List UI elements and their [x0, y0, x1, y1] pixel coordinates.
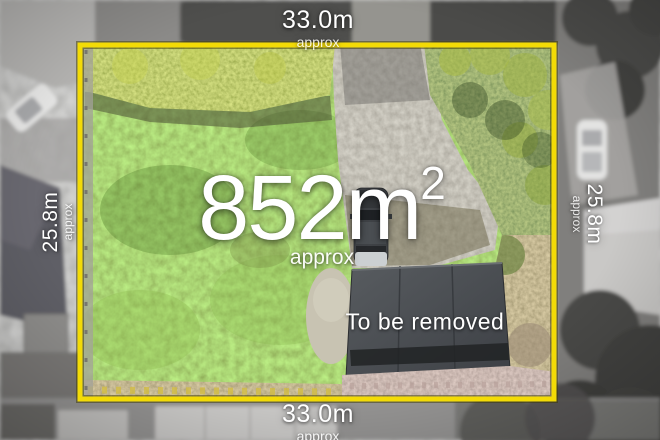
shed-roof	[346, 263, 510, 377]
parked-car-driveway	[350, 188, 392, 266]
lot-aerial-scene	[0, 0, 660, 440]
aerial-lot-photo: 33.0m approx 33.0m approx 25.8m approx 2…	[0, 0, 660, 440]
